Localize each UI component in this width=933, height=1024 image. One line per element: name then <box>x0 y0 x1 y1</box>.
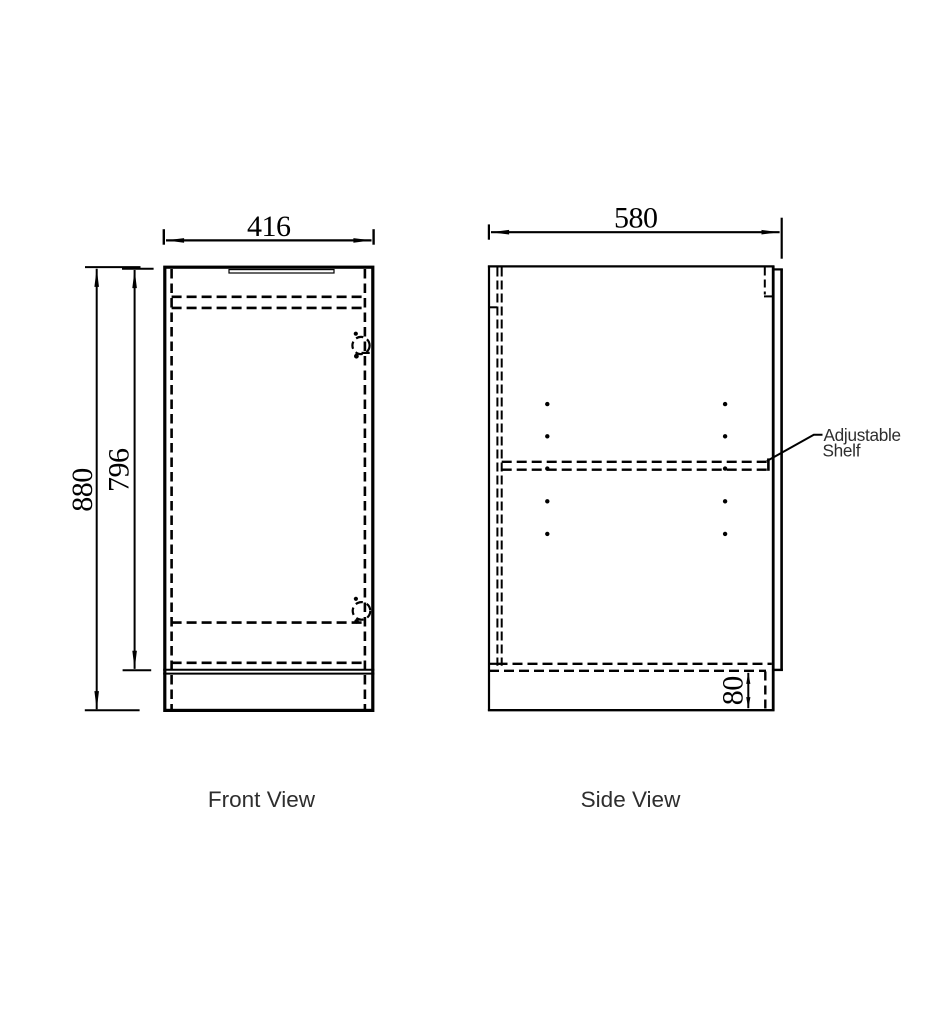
svg-text:80: 80 <box>717 676 750 705</box>
svg-text:Front View: Front View <box>208 787 316 812</box>
svg-text:416: 416 <box>247 210 291 243</box>
svg-text:880: 880 <box>66 468 99 512</box>
svg-text:Side View: Side View <box>581 787 681 812</box>
svg-text:Shelf: Shelf <box>823 441 861 461</box>
svg-text:796: 796 <box>102 448 135 492</box>
svg-text:580: 580 <box>614 202 658 235</box>
